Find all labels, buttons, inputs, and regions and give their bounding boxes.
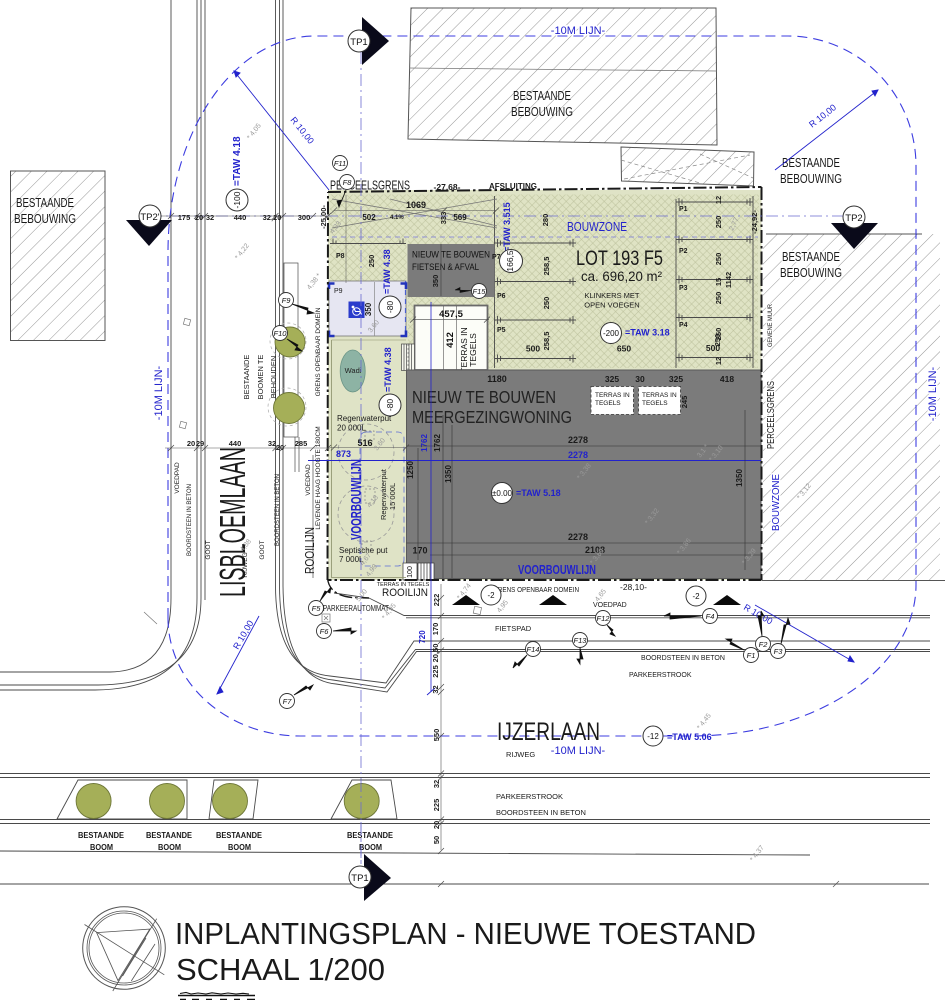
svg-text:ca. 696,20 m²: ca. 696,20 m² (581, 268, 662, 284)
svg-text:15: 15 (714, 278, 723, 286)
svg-text:12: 12 (714, 196, 723, 204)
svg-text:GOOT: GOOT (259, 540, 266, 559)
svg-text:30: 30 (635, 374, 645, 384)
svg-text:NIEUW TE BOUWEN: NIEUW TE BOUWEN (412, 387, 556, 407)
svg-text:F1: F1 (747, 651, 756, 660)
svg-text:-2: -2 (487, 591, 495, 600)
svg-text:PARKEERSTROOK: PARKEERSTROOK (629, 672, 692, 679)
svg-text:TEGELS: TEGELS (642, 400, 668, 407)
svg-text:1142: 1142 (724, 272, 733, 288)
svg-text:TERRAS IN: TERRAS IN (642, 392, 677, 399)
svg-text:15 000L: 15 000L (388, 483, 397, 510)
svg-text:TP2': TP2' (140, 212, 159, 223)
svg-text:GRENS OPENBAAR DOMEIN: GRENS OPENBAAR DOMEIN (315, 307, 322, 396)
svg-text:333: 333 (439, 212, 448, 225)
svg-text:350: 350 (431, 275, 440, 288)
svg-text:-27,68-: -27,68- (434, 182, 461, 192)
svg-text:1180: 1180 (487, 374, 507, 384)
svg-text:BEBOUWING: BEBOUWING (14, 211, 76, 226)
svg-text:12: 12 (714, 357, 723, 365)
svg-text:BOOMEN TE: BOOMEN TE (256, 355, 265, 400)
svg-text:100: 100 (407, 566, 414, 578)
svg-text:Wadi: Wadi (345, 366, 362, 375)
svg-text:=TAW 5.18: =TAW 5.18 (516, 488, 561, 498)
svg-text:BEBOUWING: BEBOUWING (780, 265, 842, 280)
svg-text:250: 250 (714, 292, 723, 305)
svg-text:TEGELS: TEGELS (595, 400, 621, 407)
svg-text:166,5: 166,5 (505, 250, 515, 272)
svg-text:258,5: 258,5 (542, 257, 551, 276)
svg-text:2278: 2278 (568, 435, 588, 445)
svg-text:250: 250 (542, 297, 551, 310)
svg-text:250: 250 (713, 334, 722, 347)
svg-text:258,5: 258,5 (542, 332, 551, 351)
svg-text:F5: F5 (312, 604, 322, 613)
svg-text:BOUWZONE: BOUWZONE (770, 474, 782, 531)
svg-text:BOOM: BOOM (158, 842, 181, 852)
svg-text:300: 300 (298, 213, 311, 222)
svg-text:BESTAANDE: BESTAANDE (78, 830, 124, 840)
svg-text:-12: -12 (647, 732, 659, 741)
svg-text:20: 20 (432, 821, 441, 829)
svg-text:=TAW 3.515: =TAW 3.515 (502, 202, 512, 252)
svg-text:BOUWZONE: BOUWZONE (567, 220, 627, 234)
svg-text:BOORDSTEEN IN BETON: BOORDSTEEN IN BETON (641, 655, 725, 662)
svg-text:TEGELS: TEGELS (468, 333, 478, 367)
svg-text:BOORDSTEEN IN BETON: BOORDSTEEN IN BETON (187, 484, 193, 556)
svg-text:-200: -200 (603, 329, 620, 338)
svg-text:-10M LIJN-: -10M LIJN- (551, 745, 606, 757)
svg-text:F13: F13 (574, 636, 588, 645)
svg-text:1762: 1762 (433, 434, 442, 452)
svg-text:F7: F7 (283, 697, 293, 706)
svg-text:F15: F15 (473, 287, 487, 296)
svg-text:50: 50 (432, 836, 441, 844)
svg-text:569: 569 (453, 213, 467, 222)
svg-text:440: 440 (234, 213, 247, 222)
svg-text:BESTAANDE: BESTAANDE (242, 355, 251, 400)
svg-text:TP2: TP2 (845, 213, 862, 224)
svg-text:170: 170 (431, 623, 440, 636)
svg-text:BOOM: BOOM (228, 842, 251, 852)
svg-text:BOOM: BOOM (359, 842, 382, 852)
svg-text:BESTAANDE: BESTAANDE (782, 249, 840, 264)
svg-text:PARKEERSTROOK: PARKEERSTROOK (496, 792, 563, 801)
svg-text:BESTAANDE: BESTAANDE (347, 830, 393, 840)
svg-text:VOEDPAD: VOEDPAD (174, 462, 181, 494)
svg-text:175: 175 (178, 213, 191, 222)
svg-text:FIETSEN & AFVAL: FIETSEN & AFVAL (412, 262, 479, 273)
svg-text:BEBOUWING: BEBOUWING (780, 171, 842, 186)
svg-text:32,20: 32,20 (263, 213, 282, 222)
svg-text:TP1: TP1 (351, 873, 368, 884)
svg-text:F9: F9 (282, 296, 292, 305)
svg-text:VOORBOUWLIJN: VOORBOUWLIJN (518, 563, 596, 577)
svg-text:TP1: TP1 (350, 37, 367, 48)
svg-text:BOORDSTEEN IN BETON: BOORDSTEEN IN BETON (496, 808, 586, 817)
svg-text:IJZERLAAN: IJZERLAAN (497, 718, 600, 746)
svg-text:Regenwaterput: Regenwaterput (379, 468, 388, 520)
svg-text:650: 650 (617, 344, 631, 354)
svg-text:KLINKERS MET: KLINKERS MET (584, 291, 639, 300)
svg-text:-10M LIJN-: -10M LIJN- (927, 366, 939, 421)
svg-text:225: 225 (431, 665, 440, 678)
svg-text:P4: P4 (679, 322, 688, 329)
svg-text:20: 20 (187, 439, 195, 448)
svg-text:P1: P1 (679, 206, 688, 213)
svg-text:-28,10-: -28,10- (620, 582, 647, 592)
svg-text:PARKEERAUTOMMAT: PARKEERAUTOMMAT (323, 604, 389, 613)
svg-text:ROOILIJN: ROOILIJN (303, 527, 317, 574)
svg-text:1762: 1762 (420, 434, 429, 452)
svg-text:OPEN VOEGEN: OPEN VOEGEN (584, 301, 639, 310)
svg-text:P9: P9 (334, 288, 343, 295)
svg-text:BOORDSTEEN IN BETON: BOORDSTEEN IN BETON (275, 474, 281, 546)
svg-text:LOT 193 F5: LOT 193 F5 (576, 246, 663, 270)
svg-text:Septische put: Septische put (339, 546, 388, 555)
svg-text:F4: F4 (706, 612, 715, 621)
svg-text:412: 412 (445, 332, 456, 348)
svg-text:F14: F14 (527, 645, 540, 654)
svg-text:285: 285 (295, 439, 308, 448)
svg-text:SCHAAL 1/200: SCHAAL 1/200 (176, 953, 385, 987)
svg-text:502: 502 (362, 213, 376, 222)
svg-text:ROOILIJN: ROOILIJN (382, 587, 428, 599)
svg-text:1350: 1350 (735, 469, 744, 487)
svg-text:-2: -2 (692, 592, 700, 601)
svg-text:AFSLUITING: AFSLUITING (489, 182, 537, 191)
svg-text:=TAW 4.18: =TAW 4.18 (232, 136, 243, 186)
svg-text:FIETSPAD: FIETSPAD (495, 624, 532, 633)
svg-text:NIEUW TE BOUWEN: NIEUW TE BOUWEN (412, 250, 490, 261)
svg-text:20 000L: 20 000L (337, 424, 366, 433)
svg-text:-100: -100 (232, 191, 242, 208)
svg-text:RIJWEG: RIJWEG (506, 750, 535, 759)
svg-text:TERRAS IN: TERRAS IN (595, 392, 630, 399)
svg-text:INPLANTINGSPLAN - NIEUWE TOEST: INPLANTINGSPLAN - NIEUWE TOESTAND (175, 917, 756, 951)
svg-text:20,50: 20,50 (431, 644, 440, 663)
svg-text:=TAW 5.06: =TAW 5.06 (667, 732, 712, 742)
svg-text:250: 250 (714, 216, 723, 229)
svg-text:MEERGEZINGWONING: MEERGEZINGWONING (412, 407, 572, 427)
svg-text:457,5: 457,5 (439, 309, 463, 320)
svg-text:225: 225 (432, 799, 441, 812)
svg-text:325: 325 (605, 374, 619, 384)
svg-text:±0.00: ±0.00 (492, 489, 513, 498)
svg-text:1350: 1350 (444, 465, 453, 483)
svg-text:=TAW 4.38: =TAW 4.38 (382, 249, 392, 294)
svg-text:BESTAANDE: BESTAANDE (16, 195, 74, 210)
svg-text:32: 32 (432, 780, 441, 788)
svg-text:F11: F11 (334, 159, 346, 168)
svg-text:222: 222 (432, 594, 441, 607)
svg-text:418: 418 (720, 374, 734, 384)
svg-text:32: 32 (431, 685, 440, 693)
svg-text:BESTAANDE: BESTAANDE (216, 830, 262, 840)
svg-text:F10: F10 (274, 329, 288, 338)
svg-text:P5: P5 (497, 327, 506, 334)
svg-text:BESTAANDE: BESTAANDE (513, 88, 571, 103)
svg-text:1250: 1250 (406, 461, 415, 479)
svg-text:2278: 2278 (568, 532, 588, 542)
svg-text:170: 170 (412, 546, 427, 556)
svg-text:29: 29 (196, 439, 204, 448)
svg-text:-80: -80 (385, 399, 395, 412)
svg-text:P8: P8 (336, 253, 345, 260)
svg-text:GEMENE MUUR: GEMENE MUUR (767, 304, 774, 347)
svg-text:RIJWEG: RIJWEG (242, 552, 249, 577)
svg-text:VOEDPAD: VOEDPAD (305, 464, 312, 496)
svg-text:P3: P3 (679, 285, 688, 292)
svg-text:245: 245 (680, 396, 689, 409)
svg-text:F6: F6 (320, 627, 330, 636)
svg-text:550: 550 (432, 729, 441, 742)
svg-text:-24,92-: -24,92- (750, 210, 759, 234)
svg-text:F12: F12 (597, 614, 611, 623)
svg-text:P2: P2 (679, 248, 688, 255)
svg-text:BOOM: BOOM (90, 842, 113, 852)
svg-text:-10M LIJN-: -10M LIJN- (153, 365, 165, 420)
svg-text:250: 250 (714, 253, 723, 266)
svg-text:1069: 1069 (406, 200, 426, 210)
svg-text:350: 350 (364, 302, 373, 316)
svg-text:280: 280 (541, 214, 550, 227)
svg-text:BESTAANDE: BESTAANDE (146, 830, 192, 840)
svg-text:873: 873 (336, 449, 351, 459)
svg-text:2278: 2278 (568, 450, 588, 460)
svg-text:F3: F3 (774, 647, 784, 656)
svg-text:=TAW 3.18: =TAW 3.18 (625, 328, 670, 338)
svg-text:500: 500 (526, 344, 540, 354)
svg-text:GOOT: GOOT (205, 540, 212, 559)
svg-text:440: 440 (229, 439, 242, 448)
svg-text:BEBOUWING: BEBOUWING (511, 104, 573, 119)
svg-text:250: 250 (367, 255, 376, 268)
svg-text:516: 516 (357, 438, 372, 448)
svg-text:PERCEELSGRENS: PERCEELSGRENS (766, 381, 777, 449)
svg-text:F2: F2 (759, 640, 769, 649)
svg-text:P6: P6 (497, 293, 506, 300)
svg-text:720: 720 (418, 630, 427, 644)
svg-text:GRENS OPENBAAR DOMEIN: GRENS OPENBAAR DOMEIN (493, 585, 579, 594)
svg-text:-10M LIJN-: -10M LIJN- (551, 25, 606, 37)
svg-text:BEHOUDEN: BEHOUDEN (269, 356, 278, 399)
svg-text:-80: -80 (385, 301, 395, 314)
svg-text:=TAW 4.38: =TAW 4.38 (383, 347, 393, 392)
svg-text:4.1%: 4.1% (390, 215, 404, 221)
svg-text:VOORBOUWLIJN: VOORBOUWLIJN (348, 459, 365, 540)
svg-text:325: 325 (669, 374, 683, 384)
svg-text:Regenwaterput: Regenwaterput (337, 414, 392, 423)
svg-text:TERRAS IN TEGELS: TERRAS IN TEGELS (377, 582, 430, 588)
svg-text:F8: F8 (343, 178, 353, 187)
svg-text:-25,00-: -25,00- (319, 205, 328, 229)
svg-text:LEVENDE HAAG HOOGTE 180CM: LEVENDE HAAG HOOGTE 180CM (315, 426, 322, 529)
